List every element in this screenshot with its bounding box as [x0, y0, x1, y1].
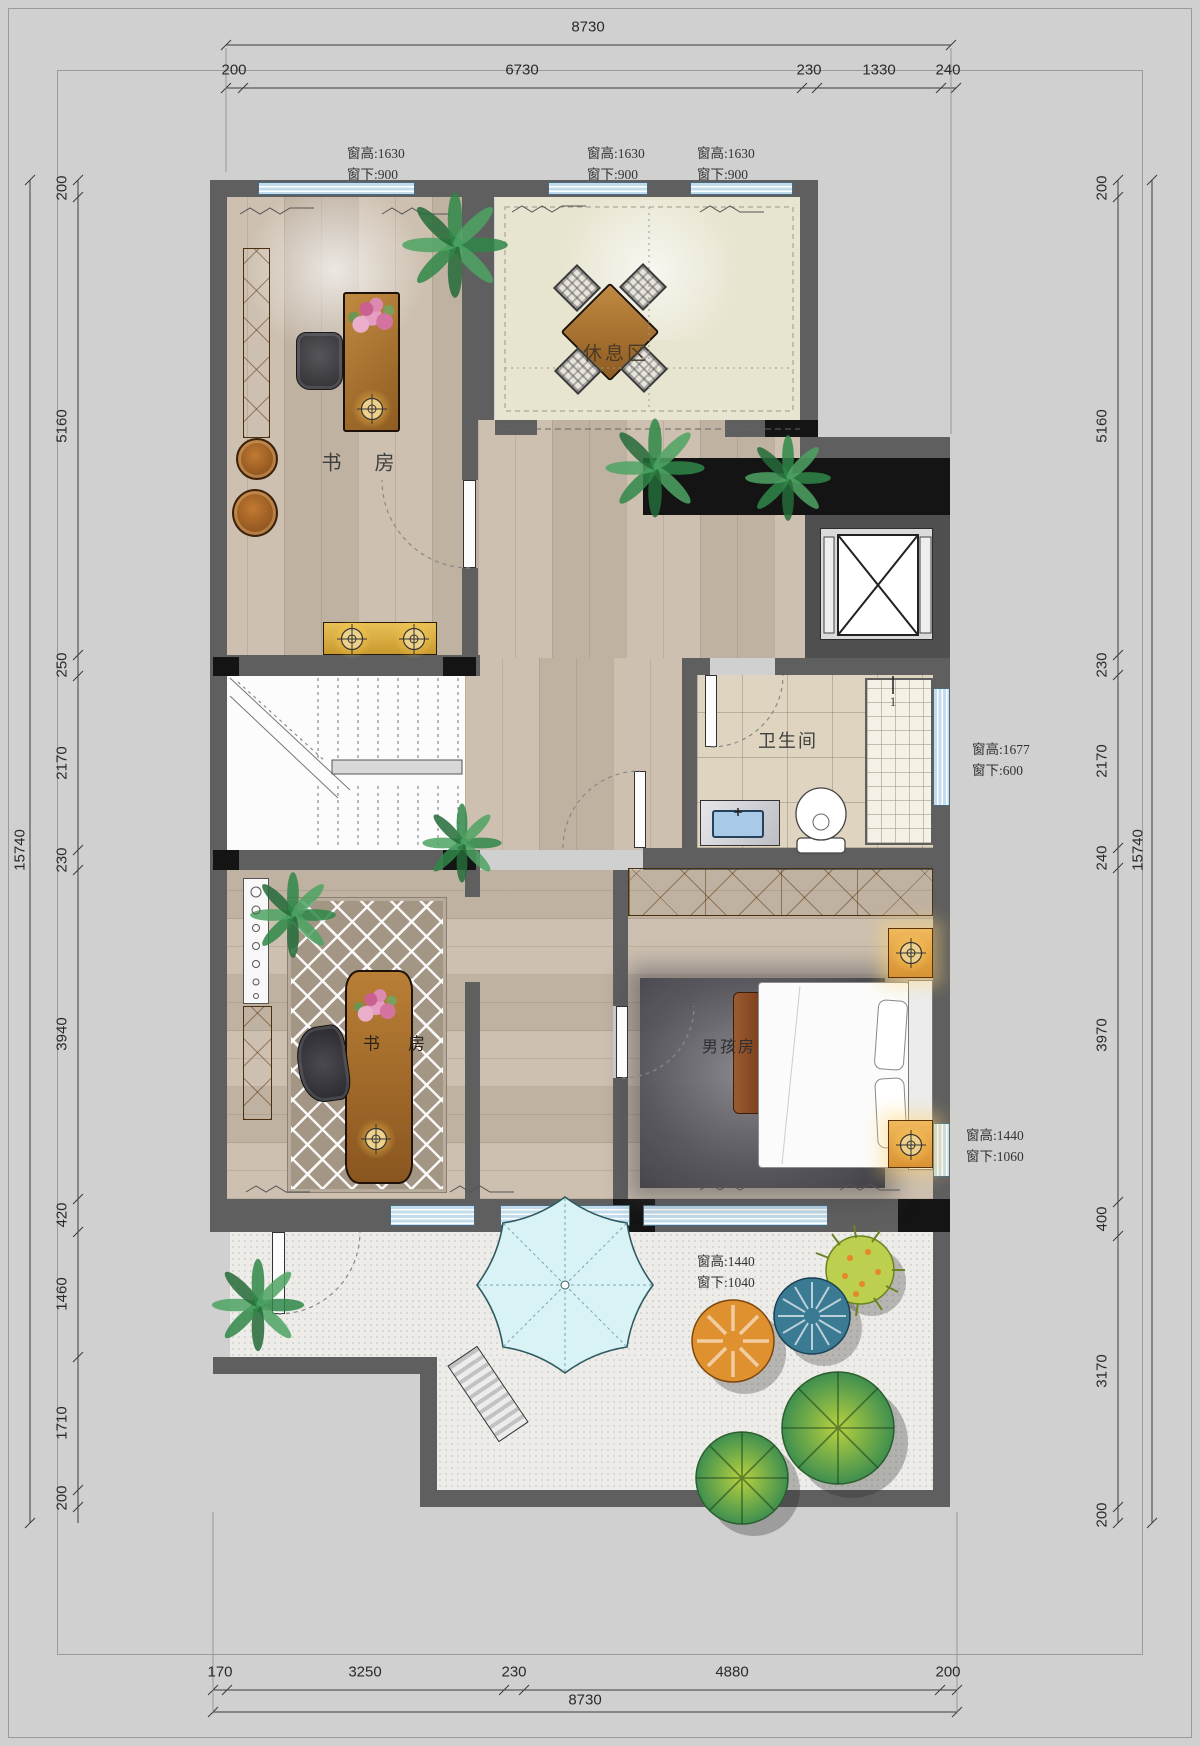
tree-teal	[774, 1278, 850, 1354]
dim-right-seg-4: 240	[1094, 845, 1111, 870]
window-note-height: 窗高:1440	[697, 1252, 755, 1273]
dim-left-seg-3: 2170	[54, 746, 71, 779]
window-note-3: 窗高:1630 窗下:900	[697, 144, 755, 186]
room-label-boys-room: 男孩房	[702, 1033, 756, 1057]
fern-plant-icon	[422, 803, 501, 882]
tree-leafy-small	[696, 1432, 788, 1524]
lamp-icon	[332, 619, 372, 659]
dim-left-seg-9: 200	[54, 1485, 71, 1510]
dim-bottom-seg-4: 200	[935, 1664, 960, 1681]
tree-orange	[692, 1300, 774, 1382]
duvet-crease	[782, 986, 800, 1164]
window-note-5: 窗高:1440 窗下:1060	[966, 1126, 1024, 1168]
fern-plant-icon	[745, 435, 831, 521]
dim-right-seg-1: 5160	[1094, 409, 1111, 442]
flowers-icon	[354, 989, 397, 1022]
dim-bottom-seg-2: 230	[501, 1664, 526, 1681]
window-note-height: 窗高:1630	[587, 144, 645, 165]
dim-bottom-seg-3: 4880	[715, 1664, 748, 1681]
dim-left-seg-1: 5160	[54, 409, 71, 442]
dim-right-seg-0: 200	[1094, 175, 1111, 200]
dim-bottom-total: 8730	[568, 1692, 601, 1709]
window-note-1: 窗高:1630 窗下:900	[347, 144, 405, 186]
window-note-sill: 窗下:900	[697, 165, 755, 186]
dim-left-seg-8: 1710	[54, 1406, 71, 1439]
window-note-sill: 窗下:1060	[966, 1147, 1024, 1168]
flowers-icon	[348, 298, 394, 333]
fern-plant-icon	[212, 1259, 304, 1351]
dim-left-seg-6: 420	[54, 1202, 71, 1227]
dim-right-total: 15740	[1130, 829, 1147, 871]
dim-left-seg-2: 250	[54, 652, 71, 677]
window-note-height: 窗高:1630	[347, 144, 405, 165]
dim-top-seg-2: 230	[796, 62, 821, 79]
dim-left-seg-5: 3940	[54, 1017, 71, 1050]
dim-top-seg-4: 240	[935, 62, 960, 79]
door-arcs	[278, 480, 783, 1314]
window-note-sill: 窗下:600	[972, 761, 1030, 782]
window-note-sill: 窗下:1040	[697, 1273, 755, 1294]
toilet-icon	[796, 788, 846, 853]
dim-right-seg-7: 3170	[1094, 1354, 1111, 1387]
dim-left-seg-4: 230	[54, 847, 71, 872]
window-note-sill: 窗下:900	[347, 165, 405, 186]
window-note-sill: 窗下:900	[587, 165, 645, 186]
window-note-6: 窗高:1440 窗下:1040	[697, 1252, 755, 1294]
dim-right-seg-6: 400	[1094, 1206, 1111, 1231]
dim-left-seg-7: 1460	[54, 1277, 71, 1310]
dim-bottom-seg-0: 170	[207, 1664, 232, 1681]
marker-shower-door: 1	[890, 694, 897, 710]
dim-top-total: 8730	[571, 19, 604, 36]
shelf-detail	[251, 887, 261, 999]
curtain-squiggles	[240, 206, 900, 1192]
elevator-icon	[824, 535, 931, 635]
window-note-height: 窗高:1440	[966, 1126, 1024, 1147]
window-note-height: 窗高:1630	[697, 144, 755, 165]
dim-right-seg-2: 230	[1094, 652, 1111, 677]
dim-top-seg-3: 1330	[862, 62, 895, 79]
window-note-4: 窗高:1677 窗下:600	[972, 740, 1030, 782]
fern-plant-icon	[606, 419, 705, 518]
lamp-icon	[891, 1125, 931, 1165]
dim-top-seg-1: 6730	[505, 62, 538, 79]
dim-bottom-seg-1: 3250	[348, 1664, 381, 1681]
dim-right-seg-5: 3970	[1094, 1018, 1111, 1051]
plan-linework	[0, 0, 1200, 1746]
room-label-bathroom: 卫生间	[758, 727, 818, 753]
window-note-2: 窗高:1630 窗下:900	[587, 144, 645, 186]
window-note-height: 窗高:1677	[972, 740, 1030, 761]
fern-plant-icon	[250, 872, 336, 958]
dimension-lines	[25, 40, 1157, 1717]
umbrella-icon	[477, 1197, 653, 1373]
lamp-icon	[394, 619, 434, 659]
dim-left-total: 15740	[12, 829, 29, 871]
faucet-icon	[734, 808, 742, 816]
room-label-study-lower: 书 房	[363, 1030, 437, 1055]
stairs	[230, 678, 462, 846]
fern-plant-icon	[402, 192, 508, 298]
lamp-icon	[891, 933, 931, 973]
room-label-study-upper: 书 房	[322, 447, 409, 476]
lounge-guides	[495, 207, 800, 429]
dim-right-seg-3: 2170	[1094, 744, 1111, 777]
lamp-icon	[352, 389, 392, 429]
dim-left-seg-0: 200	[54, 175, 71, 200]
tree-leafy-large	[782, 1372, 894, 1484]
room-label-lounge: 休息区	[583, 339, 649, 366]
lamp-icon	[356, 1119, 396, 1159]
dim-top-seg-0: 200	[221, 62, 246, 79]
dim-right-seg-8: 200	[1094, 1502, 1111, 1527]
floor-plan: 8730 200 6730 230 1330 240 170 3250 230 …	[0, 0, 1200, 1746]
